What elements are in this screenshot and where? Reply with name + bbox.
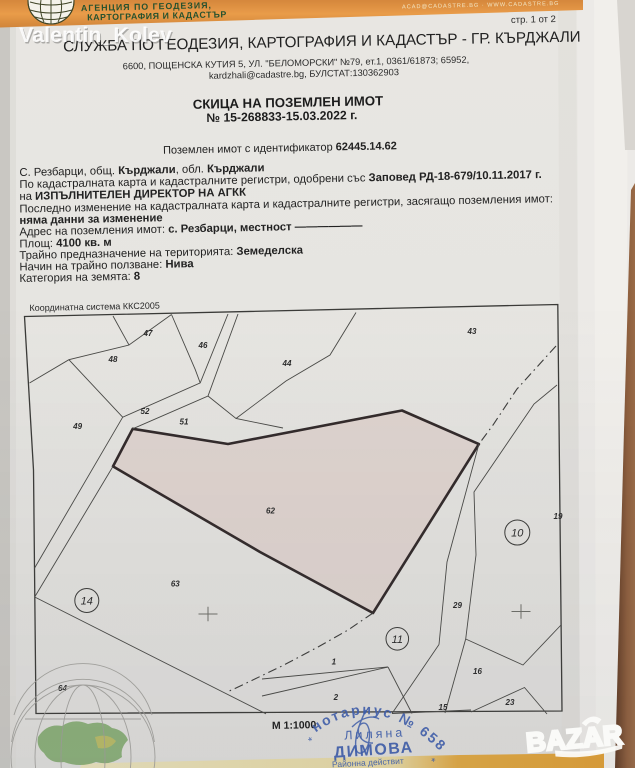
svg-text:№ 15-268833-15.03.2022 г.: № 15-268833-15.03.2022 г. [206, 108, 357, 125]
svg-text:стр. 1 от 2: стр. 1 от 2 [511, 14, 556, 26]
svg-text:Категория на земята: 8: Категория на земята: 8 [19, 271, 140, 285]
svg-text:Valentin_Kolev: Valentin_Kolev [19, 23, 172, 47]
